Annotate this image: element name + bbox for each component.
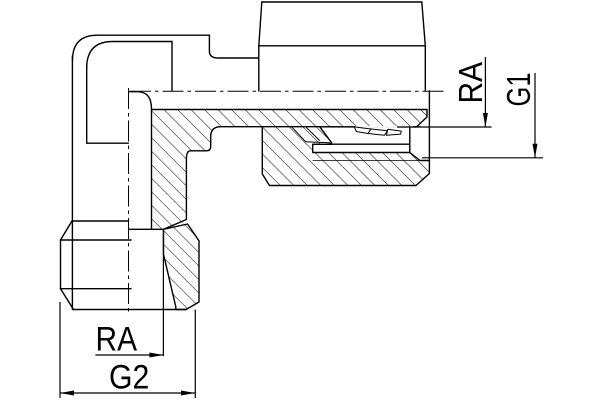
svg-text:G2: G2 xyxy=(109,358,149,396)
svg-text:RA: RA xyxy=(96,320,138,358)
svg-text:RA: RA xyxy=(452,62,489,104)
svg-text:G1: G1 xyxy=(500,73,537,107)
